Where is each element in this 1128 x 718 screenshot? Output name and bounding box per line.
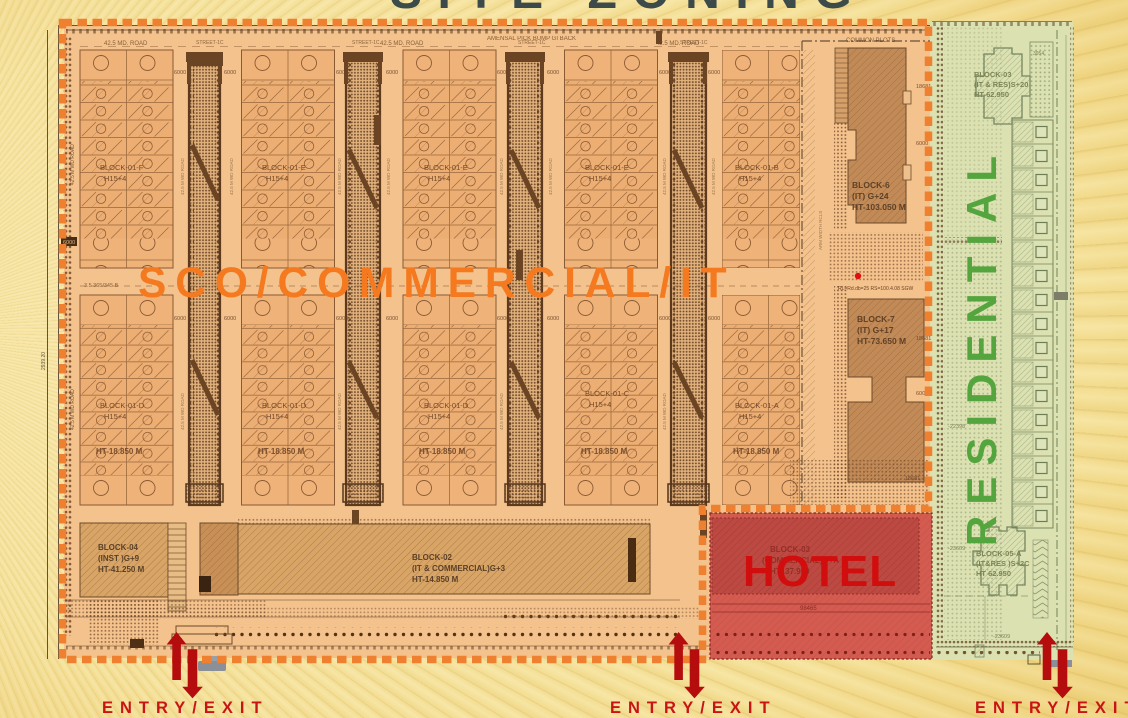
svg-text:H15+4: H15+4 bbox=[428, 174, 450, 183]
svg-text:6000: 6000 bbox=[547, 70, 559, 76]
svg-text:ARM WIDTH RCLS: ARM WIDTH RCLS bbox=[818, 211, 823, 250]
svg-text:42.5 M WD ROAD: 42.5 M WD ROAD bbox=[70, 389, 76, 430]
svg-text:BLOCK-05-A: BLOCK-05-A bbox=[976, 549, 1022, 558]
svg-text:H15+4: H15+4 bbox=[589, 400, 611, 409]
svg-text:6000: 6000 bbox=[708, 316, 720, 322]
svg-text:HOTEL: HOTEL bbox=[743, 547, 897, 596]
svg-text:(IT & COMMERCIAL)G+3: (IT & COMMERCIAL)G+3 bbox=[412, 564, 506, 573]
svg-text:42.5 M WD ROAD: 42.5 M WD ROAD bbox=[499, 157, 504, 195]
svg-text:42.5 M WD ROAD: 42.5 M WD ROAD bbox=[662, 392, 667, 430]
svg-text:BLOCK-01-E: BLOCK-01-E bbox=[585, 163, 629, 172]
svg-text:(IT) G+24: (IT) G+24 bbox=[852, 191, 889, 201]
svg-text:6000: 6000 bbox=[916, 141, 928, 147]
svg-text:BLOCK-01-F: BLOCK-01-F bbox=[100, 163, 144, 172]
svg-text:BLOCK-01-D: BLOCK-01-D bbox=[424, 401, 469, 410]
svg-text:HT-18.850 M: HT-18.850 M bbox=[581, 447, 628, 456]
svg-text:BLOCK-01-C: BLOCK-01-C bbox=[585, 389, 630, 398]
svg-text:HT-18.850 M: HT-18.850 M bbox=[419, 447, 466, 456]
svg-text:RESIDENTIAL: RESIDENTIAL bbox=[958, 145, 1005, 546]
svg-text:(INST )G+9: (INST )G+9 bbox=[98, 554, 140, 563]
svg-text:98465: 98465 bbox=[800, 606, 817, 612]
svg-text:BLOCK-01-E: BLOCK-01-E bbox=[262, 163, 306, 172]
svg-text:42.5 M WD ROAD: 42.5 M WD ROAD bbox=[180, 392, 185, 430]
svg-text:6000: 6000 bbox=[224, 316, 236, 322]
svg-text:6000: 6000 bbox=[386, 70, 398, 76]
svg-text:HT-103.050 M: HT-103.050 M bbox=[852, 202, 906, 212]
svg-text:BLOCK-04: BLOCK-04 bbox=[98, 543, 139, 552]
svg-text:BLOCK-03: BLOCK-03 bbox=[974, 70, 1012, 79]
svg-text:H15+4: H15+4 bbox=[739, 412, 761, 421]
svg-text:6000: 6000 bbox=[336, 70, 348, 76]
svg-text:2939.20: 2939.20 bbox=[41, 352, 47, 370]
svg-text:(IT & RES)S+20: (IT & RES)S+20 bbox=[974, 80, 1028, 89]
svg-text:STREET-1C: STREET-1C bbox=[196, 40, 224, 46]
svg-text:H15+4: H15+4 bbox=[104, 412, 126, 421]
svg-text:BLOCK-01-E: BLOCK-01-E bbox=[424, 163, 468, 172]
svg-text:42.5 M WD ROAD: 42.5 M WD ROAD bbox=[499, 392, 504, 430]
svg-text:6000: 6000 bbox=[659, 316, 671, 322]
svg-text:STREET-1C: STREET-1C bbox=[680, 40, 708, 46]
svg-text:BLOCK-6: BLOCK-6 bbox=[852, 180, 890, 190]
svg-text:STREET-1C: STREET-1C bbox=[518, 40, 546, 46]
svg-text:42.5 M WD ROAD: 42.5 M WD ROAD bbox=[337, 392, 342, 430]
svg-text:H15+4: H15+4 bbox=[266, 174, 288, 183]
svg-text:H15+4: H15+4 bbox=[428, 412, 450, 421]
svg-text:ENTRY/EXIT: ENTRY/EXIT bbox=[610, 699, 777, 717]
svg-text:42.5 M WD ROAD: 42.5 M WD ROAD bbox=[70, 144, 76, 185]
svg-text:6000: 6000 bbox=[497, 70, 509, 76]
svg-text:HT-41.250 M: HT-41.250 M bbox=[98, 565, 145, 574]
svg-text:RL=Rd.db=25 RS=100.4.08 SGW: RL=Rd.db=25 RS=100.4.08 SGW bbox=[838, 286, 913, 292]
svg-text:(IT&RES )S+2C: (IT&RES )S+2C bbox=[976, 559, 1030, 568]
svg-text:HT 62.950: HT 62.950 bbox=[976, 569, 1011, 578]
svg-text:6000: 6000 bbox=[708, 70, 720, 76]
svg-text:6000: 6000 bbox=[174, 70, 186, 76]
svg-text:42.5 M WD ROAD: 42.5 M WD ROAD bbox=[386, 157, 391, 195]
svg-text:H15+4: H15+4 bbox=[266, 412, 288, 421]
svg-text:HT-18.850 M: HT-18.850 M bbox=[258, 447, 305, 456]
svg-text:BLOCK-01-B: BLOCK-01-B bbox=[735, 163, 779, 172]
svg-text:H15+4: H15+4 bbox=[739, 174, 761, 183]
svg-text:6000: 6000 bbox=[659, 70, 671, 76]
svg-text:42.5 M WD ROAD: 42.5 M WD ROAD bbox=[180, 157, 185, 195]
svg-text:42.5 M WD ROAD: 42.5 M WD ROAD bbox=[711, 157, 716, 195]
svg-text:HT-73.650 M: HT-73.650 M bbox=[857, 336, 906, 346]
svg-text:18681: 18681 bbox=[916, 336, 931, 342]
svg-text:HT-62.950: HT-62.950 bbox=[974, 90, 1009, 99]
svg-text:BLOCK-01-D: BLOCK-01-D bbox=[100, 401, 145, 410]
svg-text:6000: 6000 bbox=[386, 316, 398, 322]
svg-text:-23609: -23609 bbox=[993, 634, 1010, 640]
svg-text:42.5 M WD ROAD: 42.5 M WD ROAD bbox=[337, 157, 342, 195]
svg-text:18681: 18681 bbox=[905, 476, 920, 482]
svg-text:6000: 6000 bbox=[224, 70, 236, 76]
svg-text:H15+4: H15+4 bbox=[104, 174, 126, 183]
svg-text:ENTRY/EXIT: ENTRY/EXIT bbox=[102, 699, 269, 717]
svg-text:BLOCK-7: BLOCK-7 bbox=[857, 314, 895, 324]
svg-text:BLOCK-02: BLOCK-02 bbox=[412, 553, 453, 562]
svg-text:6000: 6000 bbox=[547, 316, 559, 322]
svg-text:STREET-1C: STREET-1C bbox=[352, 40, 380, 46]
svg-text:6000: 6000 bbox=[497, 316, 509, 322]
svg-text:H15+4: H15+4 bbox=[589, 174, 611, 183]
svg-text:42.5 M WD ROAD: 42.5 M WD ROAD bbox=[548, 157, 553, 195]
svg-text:BLOCK-01-D: BLOCK-01-D bbox=[262, 401, 307, 410]
svg-text:HT-18.850 M: HT-18.850 M bbox=[733, 447, 780, 456]
svg-text:SITE ZONING: SITE ZONING bbox=[390, 0, 867, 19]
svg-text:HT-18.850 M: HT-18.850 M bbox=[96, 447, 143, 456]
svg-text:42.5 M WD ROAD: 42.5 M WD ROAD bbox=[662, 157, 667, 195]
svg-text:(IT) G+17: (IT) G+17 bbox=[857, 325, 894, 335]
svg-text:SCO/COMMERCIAL/IT: SCO/COMMERCIAL/IT bbox=[138, 260, 736, 307]
svg-text:42.5 M WD ROAD: 42.5 M WD ROAD bbox=[229, 157, 234, 195]
svg-text:BLOCK-01-A: BLOCK-01-A bbox=[735, 401, 779, 410]
svg-text:3954: 3954 bbox=[1033, 51, 1044, 57]
svg-text:ENTRY/EXIT: ENTRY/EXIT bbox=[975, 699, 1128, 717]
svg-text:HT-14.850 M: HT-14.850 M bbox=[412, 575, 459, 584]
svg-text:6000: 6000 bbox=[174, 316, 186, 322]
svg-text:6000: 6000 bbox=[336, 316, 348, 322]
